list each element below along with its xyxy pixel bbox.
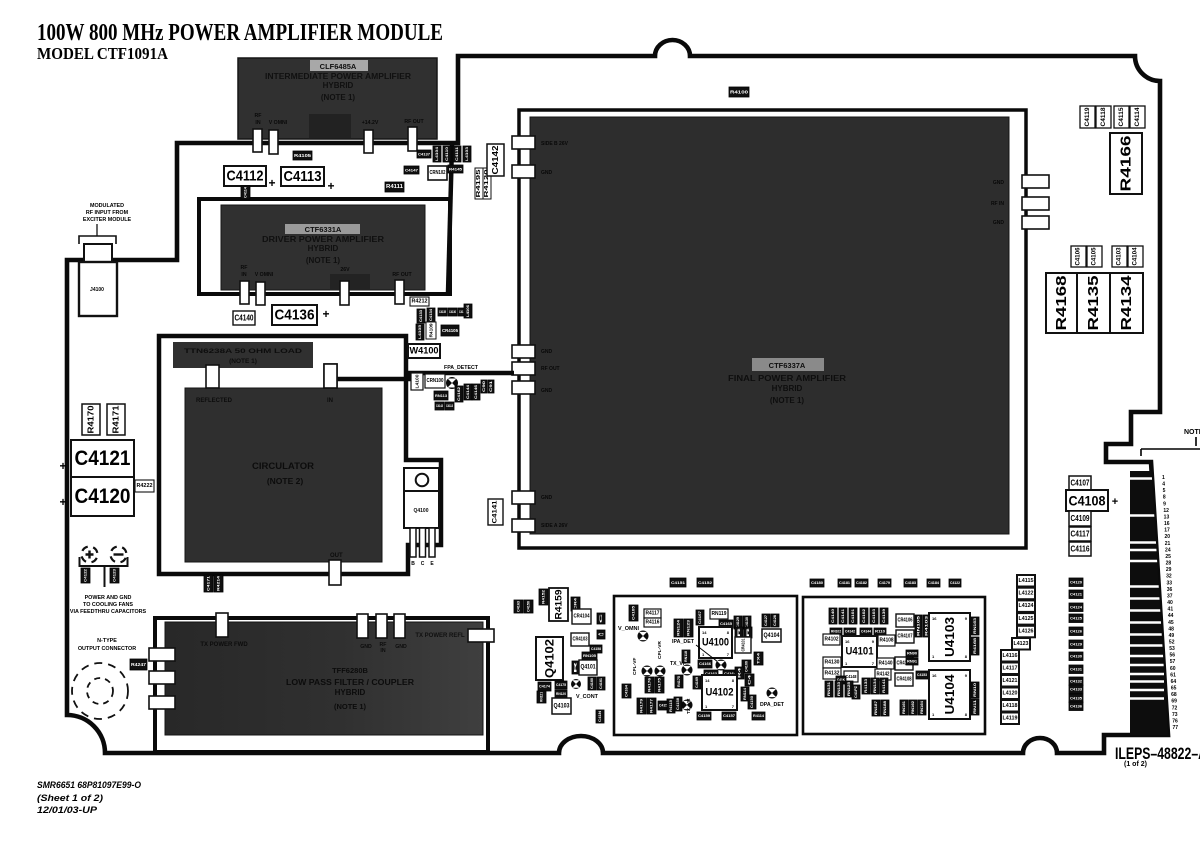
svg-text:RF INPUT FROM: RF INPUT FROM [86, 210, 129, 216]
svg-text:12/01/03-UP: 12/01/03-UP [37, 805, 98, 816]
svg-text:26V: 26V [340, 267, 350, 273]
svg-text:N-TYPE: N-TYPE [97, 638, 117, 644]
svg-text:CIRCULATOR: CIRCULATOR [252, 461, 314, 472]
svg-text:OUTPUT CONNECTOR: OUTPUT CONNECTOR [78, 646, 136, 652]
svg-text:C4108: C4108 [1069, 493, 1106, 509]
svg-text:SIDE A 26V: SIDE A 26V [541, 523, 568, 529]
svg-text:CPL-VR: CPL-VR [657, 641, 663, 659]
svg-text:GND: GND [360, 644, 372, 650]
svg-text:C4166: C4166 [699, 662, 711, 666]
svg-text:C4140: C4140 [235, 314, 254, 323]
svg-text:+: + [1112, 496, 1118, 508]
svg-text:RF OUT: RF OUT [404, 119, 424, 125]
svg-text:56: 56 [1169, 653, 1175, 659]
svg-text:TX POWER REFL: TX POWER REFL [415, 633, 465, 639]
svg-text:(NOTE 1): (NOTE 1) [321, 93, 356, 102]
svg-text:41: 41 [1168, 607, 1174, 613]
svg-text:C4162: C4162 [457, 387, 461, 401]
svg-text:5: 5 [1163, 488, 1166, 494]
svg-text:45: 45 [1168, 620, 1174, 626]
svg-text:R4102: R4102 [825, 637, 839, 643]
svg-text:HYBRID: HYBRID [772, 384, 803, 393]
svg-text:L4106: L4106 [466, 305, 470, 317]
svg-text:33: 33 [1166, 580, 1172, 586]
svg-text:CR4101: CR4101 [741, 638, 746, 651]
svg-text:IPA_DET: IPA_DET [672, 639, 694, 645]
svg-text:16: 16 [1164, 521, 1170, 527]
svg-text:52: 52 [1169, 640, 1175, 646]
svg-text:RN114: RN114 [743, 688, 747, 700]
svg-text:C4181: C4181 [839, 581, 850, 585]
svg-text:L4100: L4100 [415, 374, 420, 389]
svg-text:V OMNI: V OMNI [255, 272, 274, 278]
svg-text:C4144: C4144 [466, 384, 470, 399]
svg-text:R4152: R4152 [542, 590, 546, 604]
svg-text:RN161: RN161 [902, 701, 906, 714]
svg-text:C4171: C4171 [207, 576, 211, 591]
svg-text:4: 4 [1162, 482, 1165, 488]
svg-text:R4130: R4130 [825, 660, 840, 666]
svg-text:Q4102: Q4102 [543, 639, 557, 678]
svg-text:RN162: RN162 [911, 701, 915, 714]
svg-text:C4143: C4143 [436, 404, 443, 408]
svg-text:C4134: C4134 [429, 308, 433, 321]
svg-text:CRN102: CRN102 [430, 170, 446, 176]
svg-text:IN: IN [241, 272, 246, 278]
svg-text:TTN6238A 50 OHM LOAD: TTN6238A 50 OHM LOAD [184, 348, 302, 355]
svg-text:16: 16 [932, 616, 937, 621]
svg-text:C4106: C4106 [1076, 247, 1082, 266]
svg-text:C4113: C4113 [284, 168, 322, 185]
svg-text:(NOTE 1): (NOTE 1) [306, 256, 341, 265]
svg-text:TX_VR: TX_VR [686, 698, 692, 714]
svg-text:C4120: C4120 [1070, 580, 1082, 584]
svg-text:C4130: C4130 [1070, 654, 1082, 658]
svg-text:C4141: C4141 [841, 609, 845, 623]
svg-text:C4183: C4183 [905, 581, 916, 585]
svg-text:76: 76 [1172, 718, 1178, 724]
svg-text:RN134: RN134 [873, 679, 877, 693]
svg-text:65: 65 [1171, 686, 1177, 692]
svg-text:C4121: C4121 [75, 447, 131, 470]
svg-text:R4100: R4100 [730, 90, 749, 95]
svg-text:RN125: RN125 [847, 682, 851, 696]
svg-text:RN119: RN119 [712, 611, 727, 617]
svg-text:C4133: C4133 [1070, 687, 1082, 691]
svg-text:C41N: C41N [598, 710, 602, 722]
svg-text:R4171: R4171 [112, 405, 121, 434]
svg-text:100W 800 MHz POWER AMPLIFIER M: 100W 800 MHz POWER AMPLIFIER MODULE [37, 20, 443, 46]
svg-text:61: 61 [1170, 672, 1176, 678]
svg-text:LOW PASS FILTER / COUPLER: LOW PASS FILTER / COUPLER [286, 678, 414, 687]
svg-text:C4131: C4131 [1070, 667, 1082, 671]
svg-text:FINAL POWER AMPLIFIER: FINAL POWER AMPLIFIER [728, 374, 846, 383]
svg-text:C4122: C4122 [950, 581, 960, 585]
svg-text:C4104: C4104 [1133, 247, 1139, 266]
svg-text:Q4104: Q4104 [764, 632, 780, 639]
svg-text:CR4106: CR4106 [898, 618, 913, 624]
svg-text:(NOTE 2): (NOTE 2) [267, 476, 304, 486]
svg-text:13: 13 [1164, 514, 1170, 520]
svg-text:C4175: C4175 [556, 683, 566, 687]
svg-text:C4150: C4150 [527, 601, 531, 612]
svg-text:36: 36 [1167, 587, 1173, 593]
svg-text:POWER AND GND: POWER AND GND [85, 595, 132, 601]
svg-text:R4140: R4140 [879, 661, 893, 667]
svg-text:R4159: R4159 [554, 590, 564, 620]
svg-text:77: 77 [1173, 725, 1179, 731]
svg-text:RN133: RN133 [837, 682, 841, 696]
svg-text:C4159: C4159 [698, 714, 710, 718]
svg-text:RN90: RN90 [907, 652, 917, 656]
svg-text:C4158: C4158 [591, 647, 601, 651]
svg-text:CR4104: CR4104 [574, 614, 591, 620]
svg-text:+14.2V: +14.2V [362, 120, 379, 126]
svg-text:RF: RF [241, 265, 248, 271]
svg-text:C4142: C4142 [845, 630, 855, 634]
svg-text:U4104: U4104 [942, 674, 957, 715]
svg-text:C4118: C4118 [1100, 107, 1107, 126]
svg-text:RN187: RN187 [874, 701, 878, 715]
svg-text:C4116: C4116 [1071, 545, 1090, 554]
svg-text:C4157: C4157 [723, 714, 735, 718]
svg-text:C4105: C4105 [1092, 247, 1098, 266]
svg-text:73: 73 [1172, 712, 1178, 718]
svg-text:RN131: RN131 [827, 682, 831, 696]
svg-text:TFF6280B: TFF6280B [332, 666, 368, 675]
svg-text:TO COOLING FANS: TO COOLING FANS [83, 602, 133, 608]
svg-text:R4214: R4214 [217, 575, 221, 591]
svg-text:RN163: RN163 [973, 618, 977, 634]
svg-text:C4152: C4152 [698, 580, 713, 585]
svg-text:C4101: C4101 [851, 609, 855, 623]
svg-text:(NOTE 1): (NOTE 1) [229, 358, 257, 365]
svg-text:R4117: R4117 [646, 611, 660, 617]
svg-text:RN120: RN120 [556, 692, 566, 696]
svg-text:R4195: R4195 [476, 170, 482, 198]
svg-text:L4125: L4125 [1019, 616, 1034, 622]
svg-text:C4128: C4128 [773, 615, 777, 626]
svg-text:R4133: R4133 [864, 679, 868, 693]
svg-text:R4142: R4142 [877, 672, 890, 678]
svg-text:C4146: C4146 [474, 385, 478, 399]
svg-text:C4165: C4165 [720, 622, 732, 626]
svg-text:+: + [268, 176, 275, 190]
svg-text:R4: R4 [738, 668, 742, 678]
svg-text:C4142: C4142 [491, 145, 500, 175]
svg-text:R4114: R4114 [753, 714, 765, 718]
svg-text:C4113: C4113 [446, 404, 453, 408]
svg-text:INTERMEDIATE POWER AMPLIFIER: INTERMEDIATE POWER AMPLIFIER [265, 72, 411, 81]
svg-text:C4135: C4135 [439, 310, 446, 314]
svg-text:Q4101: Q4101 [581, 665, 597, 671]
svg-text:53: 53 [1169, 646, 1175, 652]
svg-text:V OMNI: V OMNI [269, 120, 288, 126]
svg-text:8: 8 [1163, 495, 1166, 501]
svg-text:Q4103: Q4103 [554, 703, 570, 710]
svg-text:U4100: U4100 [702, 637, 729, 649]
svg-text:C4103: C4103 [1117, 247, 1123, 266]
svg-text:C4151: C4151 [671, 580, 686, 585]
svg-text:IN: IN [380, 648, 385, 654]
svg-text:20: 20 [1165, 534, 1171, 540]
svg-text:C4114: C4114 [1134, 107, 1141, 126]
svg-text:L4105: L4105 [418, 325, 422, 339]
svg-text:R110: R110 [875, 630, 885, 634]
svg-text:CPL-VF: CPL-VF [632, 658, 638, 675]
svg-text:R4111: R4111 [386, 184, 403, 190]
svg-text:MODEL CTF1091A: MODEL CTF1091A [37, 44, 168, 63]
svg-text:EXCITER MODULE: EXCITER MODULE [83, 217, 132, 223]
svg-text:GND: GND [993, 220, 1005, 226]
svg-text:C4136: C4136 [449, 310, 456, 314]
svg-text:DPA_DET: DPA_DET [760, 702, 784, 708]
svg-text:C4184: C4184 [928, 581, 940, 585]
svg-text:RN10: RN10 [973, 683, 977, 697]
svg-text:12: 12 [1163, 508, 1169, 514]
svg-text:C4153: C4153 [917, 673, 927, 677]
svg-text:+: + [322, 307, 329, 321]
svg-text:HYBRID: HYBRID [335, 688, 366, 697]
svg-text:GND: GND [541, 349, 553, 355]
svg-text:RN105: RN105 [917, 616, 921, 636]
svg-text:NOTES: NOTES [1184, 429, 1200, 436]
svg-text:C4174: C4174 [539, 685, 551, 689]
svg-text:R4176: R4176 [648, 678, 652, 692]
svg-text:72: 72 [1172, 705, 1178, 711]
svg-text:C4144: C4144 [861, 630, 871, 634]
svg-text:CR4103: CR4103 [573, 637, 588, 643]
svg-text:R4168: R4168 [1053, 276, 1070, 331]
svg-text:R4103: R4103 [925, 616, 929, 636]
svg-text:V_CONT: V_CONT [576, 694, 598, 700]
svg-text:SMR6651 68P81097E99-O: SMR6651 68P81097E99-O [37, 780, 142, 791]
svg-text:R4135: R4135 [1085, 276, 1102, 331]
svg-text:37: 37 [1167, 593, 1173, 599]
svg-text:C4123: C4123 [113, 569, 117, 582]
svg-text:C4115: C4115 [1118, 107, 1125, 126]
svg-text:C: C [421, 561, 425, 567]
svg-text:B: B [411, 561, 415, 567]
svg-text:21: 21 [1165, 541, 1171, 547]
svg-text:C4167: C4167 [698, 611, 702, 624]
svg-text:IN: IN [327, 398, 333, 404]
svg-text:CTF6337A: CTF6337A [769, 361, 806, 370]
svg-text:R4222: R4222 [137, 483, 153, 489]
svg-text:R4247: R4247 [131, 662, 147, 667]
svg-text:CR4108: CR4108 [897, 677, 912, 683]
svg-text:C4139: C4139 [882, 609, 886, 623]
svg-text:C4102: C4102 [862, 609, 866, 623]
svg-text:RN102: RN102 [831, 630, 841, 634]
svg-text:CLF6485A: CLF6485A [320, 62, 357, 71]
svg-text:L4126: L4126 [1019, 629, 1034, 635]
svg-text:DRIVER POWER AMPLIFIER: DRIVER POWER AMPLIFIER [262, 235, 384, 244]
svg-text:44: 44 [1168, 613, 1174, 619]
svg-text:R4177: R4177 [650, 699, 654, 713]
svg-text:C4164: C4164 [625, 685, 629, 697]
svg-text:OUT: OUT [330, 553, 343, 559]
svg-text:C91: C91 [489, 381, 493, 392]
svg-text:U4101: U4101 [846, 646, 874, 658]
svg-text:25: 25 [1165, 554, 1171, 560]
svg-text:V_OMNI: V_OMNI [618, 626, 640, 632]
svg-text:R4145: R4145 [449, 167, 463, 172]
svg-text:L4103: L4103 [465, 147, 469, 161]
svg-text:HYBRID: HYBRID [308, 244, 339, 253]
svg-text:L4121: L4121 [1003, 678, 1018, 684]
svg-text:29: 29 [1166, 567, 1172, 573]
svg-text:CTF6331A: CTF6331A [305, 225, 342, 234]
svg-text:L4122: L4122 [1019, 590, 1034, 596]
svg-text:RN121: RN121 [540, 692, 544, 702]
svg-text:C4180: C4180 [811, 581, 823, 585]
svg-text:C4150: C4150 [750, 696, 754, 708]
svg-text:IN: IN [255, 120, 260, 126]
svg-text:C4169: C4169 [695, 677, 699, 688]
svg-text:C4111: C4111 [455, 147, 459, 161]
svg-text:RN91: RN91 [907, 660, 917, 664]
svg-text:RF: RF [255, 113, 262, 119]
svg-text:CR4: CR4 [574, 598, 578, 610]
svg-text:C4107: C4107 [1071, 479, 1090, 488]
svg-text:L4115: L4115 [1019, 578, 1034, 584]
svg-text:C4129: C4129 [1070, 642, 1082, 646]
svg-text:C41PZ: C41PZ [854, 686, 858, 698]
svg-text:C4161: C4161 [599, 678, 603, 689]
svg-text:(Sheet 1 of 2): (Sheet 1 of 2) [37, 793, 103, 804]
svg-text:L4119: L4119 [1003, 715, 1018, 721]
svg-text:C4148: C4148 [846, 674, 857, 679]
svg-text:(NOTE 1): (NOTE 1) [770, 396, 805, 405]
svg-text:C4140: C4140 [831, 609, 835, 623]
svg-text:R4170: R4170 [87, 405, 96, 434]
svg-text:GND: GND [541, 170, 553, 176]
svg-text:28: 28 [1166, 561, 1172, 567]
svg-text:C4136: C4136 [275, 307, 315, 324]
svg-text:C4122: C4122 [84, 569, 88, 582]
svg-text:R4134: R4134 [1118, 275, 1135, 331]
svg-text:1: 1 [1162, 475, 1165, 481]
svg-text:SIDE B 26V: SIDE B 26V [541, 141, 569, 147]
svg-text:C4: C4 [748, 675, 752, 685]
svg-text:(1 of 2): (1 of 2) [1124, 761, 1147, 768]
svg-text:R4175: R4175 [658, 678, 662, 692]
svg-text:L4123: L4123 [1014, 641, 1029, 647]
svg-text:+: + [327, 179, 334, 193]
svg-text:CR4105: CR4105 [442, 328, 458, 333]
svg-text:C4182: C4182 [856, 581, 867, 585]
svg-text:C4103: C4103 [872, 609, 876, 623]
svg-text:R4115: R4115 [669, 700, 673, 712]
svg-text:GND: GND [993, 180, 1005, 186]
svg-text:+: + [59, 495, 66, 509]
svg-text:L4124: L4124 [1019, 603, 1035, 609]
svg-text:GND: GND [395, 644, 407, 650]
svg-text:GND: GND [541, 388, 553, 394]
svg-text:C4163: C4163 [517, 601, 521, 612]
svg-text:48: 48 [1168, 626, 1174, 632]
svg-text:+: + [59, 459, 66, 473]
svg-text:R4141: R4141 [882, 679, 886, 693]
svg-text:24: 24 [1165, 547, 1171, 553]
svg-text:C4110: C4110 [445, 147, 449, 161]
svg-text:C4130: C4130 [745, 617, 749, 628]
svg-text:L4116: L4116 [1003, 653, 1018, 659]
svg-text:16: 16 [845, 639, 850, 644]
svg-text:RN164: RN164 [920, 701, 924, 714]
svg-text:C4141: C4141 [493, 500, 499, 524]
svg-text:57: 57 [1170, 659, 1176, 665]
svg-text:68: 68 [1171, 692, 1177, 698]
svg-text:U4103: U4103 [942, 617, 957, 657]
svg-text:R4212: R4212 [412, 299, 428, 305]
svg-text:C4135: C4135 [1070, 696, 1082, 700]
svg-text:C4109: C4109 [1071, 514, 1090, 523]
svg-text:C4112: C4112 [227, 168, 264, 185]
svg-text:VIA FEEDTHRU CAPACITORS: VIA FEEDTHRU CAPACITORS [70, 609, 147, 615]
svg-text:R4116: R4116 [646, 620, 660, 626]
svg-text:C4132: C4132 [1070, 679, 1082, 683]
svg-text:U4102: U4102 [706, 687, 734, 699]
svg-text:C4106: C4106 [745, 661, 749, 672]
svg-text:49: 49 [1169, 633, 1175, 639]
svg-text:C90: C90 [482, 381, 486, 392]
svg-text:C4147: C4147 [405, 168, 419, 173]
svg-text:9: 9 [1163, 501, 1166, 507]
svg-text:R4109: R4109 [429, 323, 434, 338]
svg-text:C4136: C4136 [1070, 704, 1082, 708]
svg-text:69: 69 [1171, 699, 1177, 705]
svg-text:TX POWER FWD: TX POWER FWD [200, 642, 248, 648]
svg-text:CR4107: CR4107 [898, 634, 913, 640]
svg-text:14: 14 [705, 678, 710, 683]
svg-text:L4117: L4117 [1003, 665, 1018, 671]
svg-text:C4126: C4126 [1070, 629, 1082, 633]
svg-text:40: 40 [1167, 600, 1173, 606]
svg-text:R4105: R4105 [294, 153, 312, 158]
svg-text:RN113: RN113 [435, 393, 448, 398]
svg-text:W4100: W4100 [410, 346, 439, 357]
svg-text:R4168: R4168 [973, 638, 977, 654]
svg-text:HYBRID: HYBRID [323, 81, 354, 90]
svg-text:RF OUT: RF OUT [541, 366, 560, 372]
svg-text:C4160: C4160 [590, 678, 594, 689]
svg-text:C4120: C4120 [75, 485, 131, 508]
svg-text:GND: GND [541, 495, 553, 501]
svg-text:CRN100: CRN100 [427, 378, 444, 384]
svg-text:R4175: R4175 [677, 676, 681, 687]
svg-text:C4125: C4125 [1070, 616, 1082, 620]
svg-text:L4118: L4118 [1003, 703, 1018, 709]
svg-text:RN118: RN118 [684, 651, 688, 662]
svg-text:C4119: C4119 [1084, 107, 1091, 126]
svg-text:C4133: C4133 [419, 310, 423, 322]
svg-text:R4166: R4166 [1118, 136, 1135, 192]
svg-text:C4127: C4127 [764, 615, 768, 626]
svg-text:R4179: R4179 [640, 699, 644, 713]
svg-text:MODULATED: MODULATED [90, 203, 124, 209]
svg-text:RN123: RN123 [687, 620, 691, 636]
svg-text:C4121: C4121 [1070, 592, 1082, 596]
svg-text:(NOTE 1): (NOTE 1) [334, 702, 367, 711]
svg-text:C4158: C4158 [676, 698, 680, 710]
svg-text:16: 16 [932, 673, 937, 678]
svg-text:RF OUT: RF OUT [392, 272, 412, 278]
svg-text:17: 17 [1164, 528, 1170, 534]
svg-text:TX4: TX4 [757, 653, 761, 664]
svg-text:C4129: C4129 [736, 617, 740, 628]
